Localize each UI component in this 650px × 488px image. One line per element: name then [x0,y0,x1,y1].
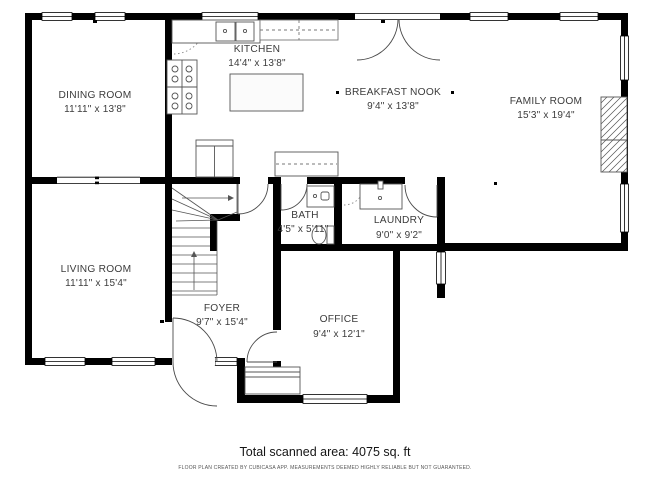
family-room-dims: 15'3" x 19'4" [517,110,575,121]
peninsula-counter [275,152,338,176]
wall-dining-kitchen-vertical [165,13,172,322]
room-label-family-room: FAMILY ROOM 15'3" x 19'4" [510,96,583,121]
bath-vanity-sink [307,186,334,207]
window-family-top-1 [470,13,508,21]
opening-front-door [172,357,215,365]
wall-left [25,13,32,365]
wall-family-bottom [437,243,628,251]
opening-french-doors [355,13,440,21]
window-family-right-1 [621,36,629,80]
room-label-living-room: LIVING ROOM 11'11" x 15'4" [61,264,132,289]
bath-name: BATH [291,210,318,221]
room-label-office: OFFICE 9'4" x 12'1" [313,314,365,340]
room-label-foyer: FOYER 9'7" x 15'4" [196,303,248,328]
office-name: OFFICE [320,314,359,325]
door-front-outswing [173,362,217,406]
wall-bath-laundry-bottom [273,244,445,251]
laundry-dims: 9'0" x 9'2" [376,230,422,241]
opening-bath-door [281,176,307,184]
wall-office-left-upper [273,251,281,330]
bath-dims: 4'5" x 5'11" [278,224,329,235]
marker-opening-center-top [95,177,99,180]
foyer-dims: 9'7" x 15'4" [196,317,248,328]
marker-french-door [381,20,385,23]
room-label-bath: BATH 4'5" x 5'11" [278,210,329,235]
room-label-kitchen: KITCHEN 14'4" x 13'8" [228,44,286,69]
walls-layer [25,13,628,403]
breakfast-nook-dims: 9'4" x 13'8" [367,101,419,112]
window-family-right-2 [621,184,629,232]
door-french-right [399,19,440,60]
floor-plan-page: DINING ROOM 11'11" x 13'8" KITCHEN 14'4"… [0,0,650,488]
stair-winder-treads [172,188,237,221]
window-living-bottom-1 [45,358,85,366]
marker-foyer-wall-end [160,320,164,323]
opening-laundry-door [405,176,437,184]
marker-breakfast-right [451,91,454,94]
door-french-left [357,19,398,60]
wall-laundry-right [437,177,445,251]
kitchen-dims: 14'4" x 13'8" [228,58,286,69]
window-family-top-2 [560,13,598,21]
stair-direction-arrow-lower [191,251,197,290]
dining-room-dims: 11'11" x 13'8" [64,104,126,115]
room-label-dining: DINING ROOM 11'11" x 13'8" [59,90,132,115]
window-office-bottom [303,395,367,404]
door-hall [238,184,268,214]
total-scanned-area: Total scanned area: 4075 sq. ft [240,445,411,459]
window-dining-1 [42,13,72,21]
wall-understair-vertical [210,221,217,251]
foyer-name: FOYER [204,303,240,314]
window-living-bottom-2 [112,358,155,366]
window-foyer-sidelight [215,358,237,366]
door-laundry [405,185,437,217]
room-label-laundry: LAUNDRY 9'0" x 9'2" [374,215,424,241]
footer: Total scanned area: 4075 sq. ft FLOOR PL… [178,445,471,471]
kitchen-counter [172,20,260,43]
dining-room-name: DINING ROOM [59,90,132,101]
kitchen-upper-cabinets [260,20,338,40]
marker-opening-center-bottom [95,182,99,185]
breakfast-nook-name: BREAKFAST NOOK [345,87,441,98]
marker-breakfast-left [336,91,339,94]
disclaimer-text: FLOOR PLAN CREATED BY CUBICASA APP. MEAS… [178,465,471,471]
marker-family [494,182,497,185]
refrigerator [196,140,233,177]
office-dims: 9'4" x 12'1" [313,329,365,340]
wall-office-right [393,250,400,403]
window-kitchen-sink [202,13,258,21]
living-room-dims: 11'11" x 15'4" [65,278,127,289]
window-dining-2 [95,13,125,21]
laundry-name: LAUNDRY [374,215,424,226]
laundry-sink [360,181,402,209]
floor-plan-drawing: DINING ROOM 11'11" x 13'8" KITCHEN 14'4"… [0,0,650,488]
room-label-breakfast-nook: BREAKFAST NOOK 9'4" x 13'8" [345,87,441,112]
opening-office-door [272,330,281,361]
front-stoop-steps [245,367,300,394]
window-stub [437,252,446,284]
kitchen-name: KITCHEN [234,44,280,55]
wall-bath-left [273,177,281,251]
wall-bath-laundry-divider [334,177,342,251]
staircase [172,184,237,295]
door-bath [281,184,307,210]
range-stove [167,60,197,114]
living-room-name: LIVING ROOM [61,264,132,275]
kitchen-island [230,74,303,111]
marker-dining-window [93,20,97,23]
family-room-name: FAMILY ROOM [510,96,583,107]
